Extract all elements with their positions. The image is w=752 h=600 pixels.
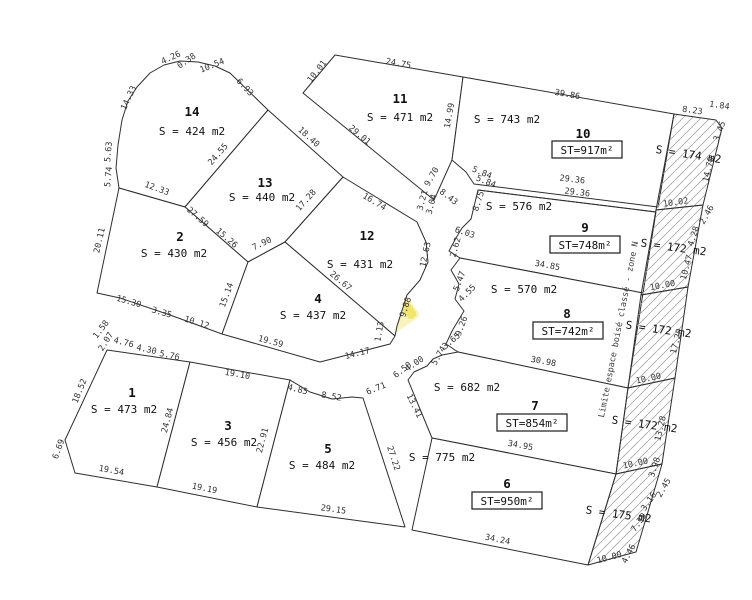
- dimension-label: 29.36: [564, 186, 591, 199]
- parcel-1-number: 1: [128, 385, 136, 400]
- parcel-2-area: S = 430 m2: [141, 247, 207, 260]
- dimension-label: 8.43: [437, 187, 459, 207]
- parcel-11-number: 11: [392, 91, 407, 106]
- parcel-9-st: ST=748m²: [559, 239, 612, 252]
- parcel-12-area: S = 431 m2: [327, 258, 393, 271]
- parcel-10-st: ST=917m²: [561, 144, 614, 157]
- parcel-5-number: 5: [324, 441, 332, 456]
- parcel-7-area: S = 682 m2: [434, 381, 500, 394]
- parcel-6-st: ST=950m²: [481, 495, 534, 508]
- parcel-3-area: S = 456 m2: [191, 436, 257, 449]
- parcel-3-number: 3: [224, 418, 232, 433]
- parcel-9-area: S = 576 m2: [486, 200, 552, 213]
- parcel-8-st: ST=742m²: [542, 325, 595, 338]
- parcel-6-area: S = 775 m2: [409, 451, 475, 464]
- parcel-plan-canvas: SAS DCIMMOBILIERE 14S = 424 m213S = 440 …: [0, 0, 752, 600]
- dimension-label: 5.63: [103, 141, 115, 162]
- parcel-8-area: S = 570 m2: [491, 283, 557, 296]
- dimension-label: 1.84: [708, 100, 730, 113]
- parcel-2-number: 2: [176, 229, 184, 244]
- parcel-6-number: 6: [503, 476, 511, 491]
- parcel-14-area: S = 424 m2: [159, 125, 225, 138]
- parcel-10-number: 10: [575, 126, 590, 141]
- parcel-7-st: ST=854m²: [506, 417, 559, 430]
- parcel-11-area: S = 471 m2: [367, 111, 433, 124]
- parcel-10-area: S = 743 m2: [474, 113, 540, 126]
- parcel-14-number: 14: [184, 104, 199, 119]
- parcel-1-area: S = 473 m2: [91, 403, 157, 416]
- parcel-13-area: S = 440 m2: [229, 191, 295, 204]
- dimension-label: 20.11: [92, 227, 108, 254]
- parcel-8-number: 8: [563, 306, 571, 321]
- parcel-13-number: 13: [257, 175, 272, 190]
- parcel-plan-svg: SAS DCIMMOBILIERE 14S = 424 m213S = 440 …: [0, 0, 752, 600]
- parcel-12-number: 12: [359, 228, 374, 243]
- dimension-label: 5.74: [103, 166, 115, 187]
- dimension-label: 4.76: [112, 336, 134, 351]
- dimension-label: 6.71: [365, 381, 388, 398]
- dimension-label: 27.22: [384, 445, 401, 472]
- parcel-7-number: 7: [531, 398, 539, 413]
- dimension-label: 6.69: [51, 438, 67, 461]
- parcel-5-area: S = 484 m2: [289, 459, 355, 472]
- parcel-4-number: 4: [314, 291, 322, 306]
- parcel-4-area: S = 437 m2: [280, 309, 346, 322]
- parcel-9-number: 9: [581, 220, 589, 235]
